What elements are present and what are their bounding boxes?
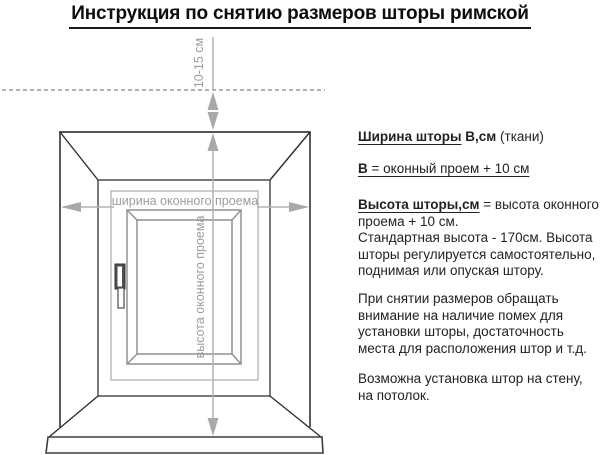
offset-distance-label: 10-15 см (192, 38, 206, 88)
mounting-note-line: Возможна установка штор на стену, (358, 371, 600, 388)
width-formula-rest: = оконный проем + 10 см (368, 161, 530, 176)
arrow-down-icon (208, 418, 219, 436)
height-text-line: шторы регулируется самостоятельно, (358, 247, 600, 264)
vertical-dimensions: 10-15 см высота оконного проема (192, 37, 219, 436)
width-heading: Ширина шторы В,см (ткани) (358, 129, 600, 146)
height-section: Высота шторы,см = высота оконного проема… (358, 197, 600, 280)
width-heading-symbol: В,см (462, 129, 497, 144)
arrow-right-icon (289, 202, 309, 212)
width-heading-term: Ширина шторы (358, 129, 462, 144)
window-sill (46, 437, 323, 453)
measuring-note: При снятии размеров обращать внимание на… (358, 291, 600, 357)
height-heading-rest: = высота оконного (480, 197, 599, 212)
measuring-note-line: места для расположения штор и т.д. (358, 341, 600, 358)
measuring-note-line: внимание на наличие помех для (358, 308, 600, 325)
instruction-page: Инструкция по снятию размеров шторы римс… (0, 0, 600, 455)
measuring-note-line: установки шторы, достаточность (358, 324, 600, 341)
window-drawing (46, 132, 323, 453)
window-handle (115, 264, 125, 308)
arrow-down-icon (208, 112, 219, 130)
arrow-left-icon (61, 202, 81, 212)
measuring-note-line: При снятии размеров обращать (358, 291, 600, 308)
mounting-note: Возможна установка штор на стену, на пот… (358, 371, 600, 404)
width-formula: В = оконный проем + 10 см (358, 161, 600, 178)
height-text-line: поднимая или опуская штору. (358, 263, 600, 280)
window-sash (127, 210, 241, 364)
height-text-line: проема + 10 см. (358, 214, 600, 231)
arrow-up-icon (208, 92, 219, 110)
arrow-up-icon (208, 133, 219, 151)
height-text-line: Стандартная высота - 170см. Высота (358, 230, 600, 247)
sill-diagonal-right (270, 396, 321, 437)
height-heading-term: Высота шторы,см (358, 197, 480, 212)
width-heading-note: (ткани) (496, 129, 544, 144)
sill-diagonal-left (49, 396, 98, 437)
width-formula-symbol: В (358, 161, 368, 176)
recess-diagonal-top-left (60, 132, 98, 180)
recess-diagonal-top-right (270, 132, 310, 180)
mounting-note-line: на потолок. (358, 388, 600, 405)
opening-height-label: высота оконного проема (193, 216, 207, 359)
opening-width-label: ширина оконного проема (112, 194, 258, 208)
